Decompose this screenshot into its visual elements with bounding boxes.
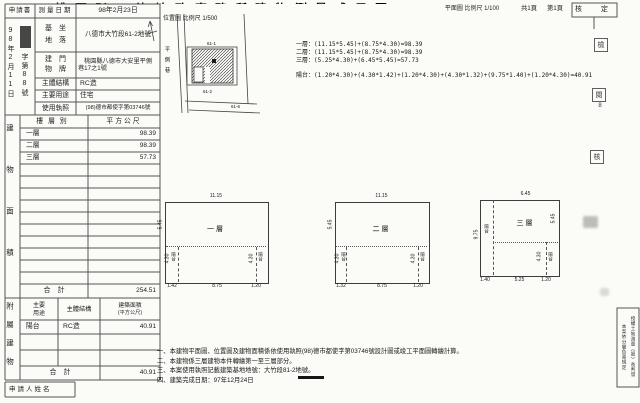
parcel-label: 61-2 xyxy=(203,89,213,94)
structure-label: 主體結構 xyxy=(35,78,76,90)
plan-divider xyxy=(166,246,266,247)
dim-balcony: 4.30 xyxy=(166,251,171,267)
dim-right: 5.45 xyxy=(552,209,557,229)
floor-plan-2: 11.15 二層 5.45 4.30 陽台 4.30 陽台 1.32 8.75 … xyxy=(328,192,436,302)
bottom-road-lines xyxy=(185,101,260,113)
floor-name: 三層 xyxy=(493,218,558,228)
area-row-value: 57.73 xyxy=(88,152,156,164)
note-2: 二、本建物係三層建物本件轉繪第一至三層部分。 xyxy=(157,357,617,367)
balcony-divider xyxy=(418,247,419,282)
area-section-label: 建物面積 xyxy=(6,124,14,296)
parcel-label: 61-1 xyxy=(207,41,217,46)
notes-block: 一、本建物平面圖、位置圖及建物面積係依使用執照(98)德市都使字第03746號設… xyxy=(157,347,617,385)
site-plan-caption: 位置圖 比例尺 1/500 xyxy=(163,14,218,22)
note-1: 一、本建物平面圖、位置圖及建物面積係依使用執照(98)德市都使字第03746號設… xyxy=(157,347,617,357)
license-label: 使用執照 xyxy=(35,102,76,115)
plan-scale-caption: 平面圖 比例尺 1/100 xyxy=(440,4,504,14)
dim-top: 11.15 xyxy=(165,194,267,199)
authority-line-2: 本案依分層負責規定 xyxy=(620,310,629,384)
authority-line-1: 授權土地測量（股）長判發 xyxy=(629,310,638,384)
plan-outline xyxy=(480,200,560,277)
building-gap xyxy=(205,67,210,83)
plan-outline xyxy=(165,202,269,284)
balcony-label: 陽台 xyxy=(548,252,553,261)
area-row-value: 98.39 xyxy=(88,140,156,152)
use-label: 主要用途 xyxy=(35,90,76,102)
sheet-total: 共1頁 xyxy=(517,4,541,14)
annex-total-value: 40.91 xyxy=(100,366,156,380)
area-row-value: 98.39 xyxy=(88,128,156,140)
dim-bottom: 1.20 xyxy=(408,284,428,289)
parcel-label: 61-6 xyxy=(231,104,241,109)
annex-section-label: 附屬建物 xyxy=(6,302,14,378)
balcony-divider xyxy=(178,247,179,282)
receive-office-stamp xyxy=(20,26,31,48)
balcony-label: 陽台 xyxy=(171,252,176,261)
annex-col-use: 主要 用途 xyxy=(20,300,58,320)
building-notch xyxy=(194,67,203,82)
balcony-label: 陽台 xyxy=(341,252,346,261)
annex-row-use: 陽台 xyxy=(26,320,58,334)
plan-divider xyxy=(336,246,427,247)
dim-balcony: 4.30 xyxy=(538,249,543,265)
annex-row-area: 40.91 xyxy=(100,320,156,334)
dim-top: 11.15 xyxy=(335,194,428,199)
dim-bottom: 1.20 xyxy=(537,278,555,283)
right-boundary-line xyxy=(244,14,248,104)
balcony-divider xyxy=(493,200,494,275)
sheet-number: 第1頁 xyxy=(543,4,567,14)
site-plan: 位置圖 比例尺 1/500 61-1 61-2 61-6 平側巷 xyxy=(145,8,345,122)
annex-col-area: 建築面積 (平方公尺) xyxy=(100,300,160,320)
receive-date: 98年2月11日 xyxy=(7,27,14,115)
survey-date-label: 測量日期 xyxy=(35,4,76,18)
north-arrow-icon xyxy=(147,21,157,41)
note-3: 三、本案使用執照記載建築基地地號：大竹段81-2地號。 xyxy=(157,366,617,376)
dim-balcony: 4.30 xyxy=(336,251,341,267)
plan-outline xyxy=(335,202,430,284)
plan-divider xyxy=(493,242,558,243)
applicant-name-label: 申請人姓名 xyxy=(9,382,73,397)
dim-bottom: 1.20 xyxy=(246,284,266,289)
dim-bottom: 1.40 xyxy=(476,278,494,283)
redaction-bar xyxy=(298,376,324,379)
stamp-check: 檢 xyxy=(594,38,608,52)
area-row-floor: 一層 xyxy=(26,128,86,140)
area-row-floor: 二層 xyxy=(26,140,86,152)
floor-name: 一層 xyxy=(165,224,267,234)
site-plan-drawing: 位置圖 比例尺 1/500 61-1 61-2 61-6 xyxy=(145,8,345,122)
lane-road-lines xyxy=(177,14,188,113)
note-4: 四、建築完成日期：97年12月24日 xyxy=(157,376,617,386)
annex-row-structure: RC造 xyxy=(63,320,100,334)
stamp-review: 閱 xyxy=(592,88,606,102)
balcony-divider xyxy=(546,242,547,275)
dim-top: 6.45 xyxy=(493,192,558,197)
lane-name: 平側巷 xyxy=(163,46,169,78)
address-label: 建 門 物 牌 xyxy=(35,54,76,76)
seal-smudge xyxy=(600,288,609,296)
formula-balcony: 陽台：(1.20*4.30)+(4.30*1.42)+(1.20*4.30)+(… xyxy=(296,70,592,79)
area-col-floor: 樓層別 xyxy=(20,115,88,128)
dim-balcony: 4.30 xyxy=(412,251,417,267)
annex-total-label: 合 計 xyxy=(20,366,100,380)
area-total-value: 254.51 xyxy=(88,284,156,298)
balcony-label: 陽台 xyxy=(258,252,263,261)
seal-smudge xyxy=(583,216,598,228)
area-total-label: 合 計 xyxy=(20,284,88,298)
area-row-floor: 三層 xyxy=(26,152,86,164)
balcony-label: 陽台 xyxy=(420,252,425,261)
balcony-divider xyxy=(256,247,257,282)
dim-left: 5.45 xyxy=(159,215,164,235)
house-number-mark xyxy=(212,59,216,63)
floor-plan-1: 11.15 一層 5.45 4.30 陽台 4.30 陽台 1.42 8.75 … xyxy=(156,192,276,302)
dim-left: 5.45 xyxy=(329,215,334,235)
stamp-number: 8 xyxy=(595,102,605,110)
floor-plan-3: 6.45 三層 9.75 陽台 5.45 4.30 陽台 1.40 5.25 1… xyxy=(468,188,580,300)
balcony-label: 陽台 xyxy=(484,224,489,233)
approval-box-label: 核 定 xyxy=(572,3,617,17)
dim-left: 9.75 xyxy=(475,225,480,245)
dim-bottom: 8.75 xyxy=(178,284,256,289)
formula-floor3: 三層：(5.25*4.30)+(6.45*5.45)=57.73 xyxy=(296,55,419,64)
stamp-approve: 核 xyxy=(590,150,604,164)
authority-stamp-box: 授權土地測量（股）長判發 本案依分層負責規定 xyxy=(618,310,638,384)
applicant-form-label: 申請書 xyxy=(5,4,35,18)
site-label: 基 坐 地 落 xyxy=(35,20,76,50)
annex-col-structure: 主體結構 xyxy=(58,300,100,320)
dim-balcony: 4.30 xyxy=(250,251,255,267)
survey-document-page: 桃園縣八德地政事務所建物測量成果圖 申請書 測量日期 98年2月23日 98年2… xyxy=(0,0,640,403)
receive-number: 字第88號 xyxy=(21,53,28,113)
floor-name: 二層 xyxy=(335,224,428,234)
